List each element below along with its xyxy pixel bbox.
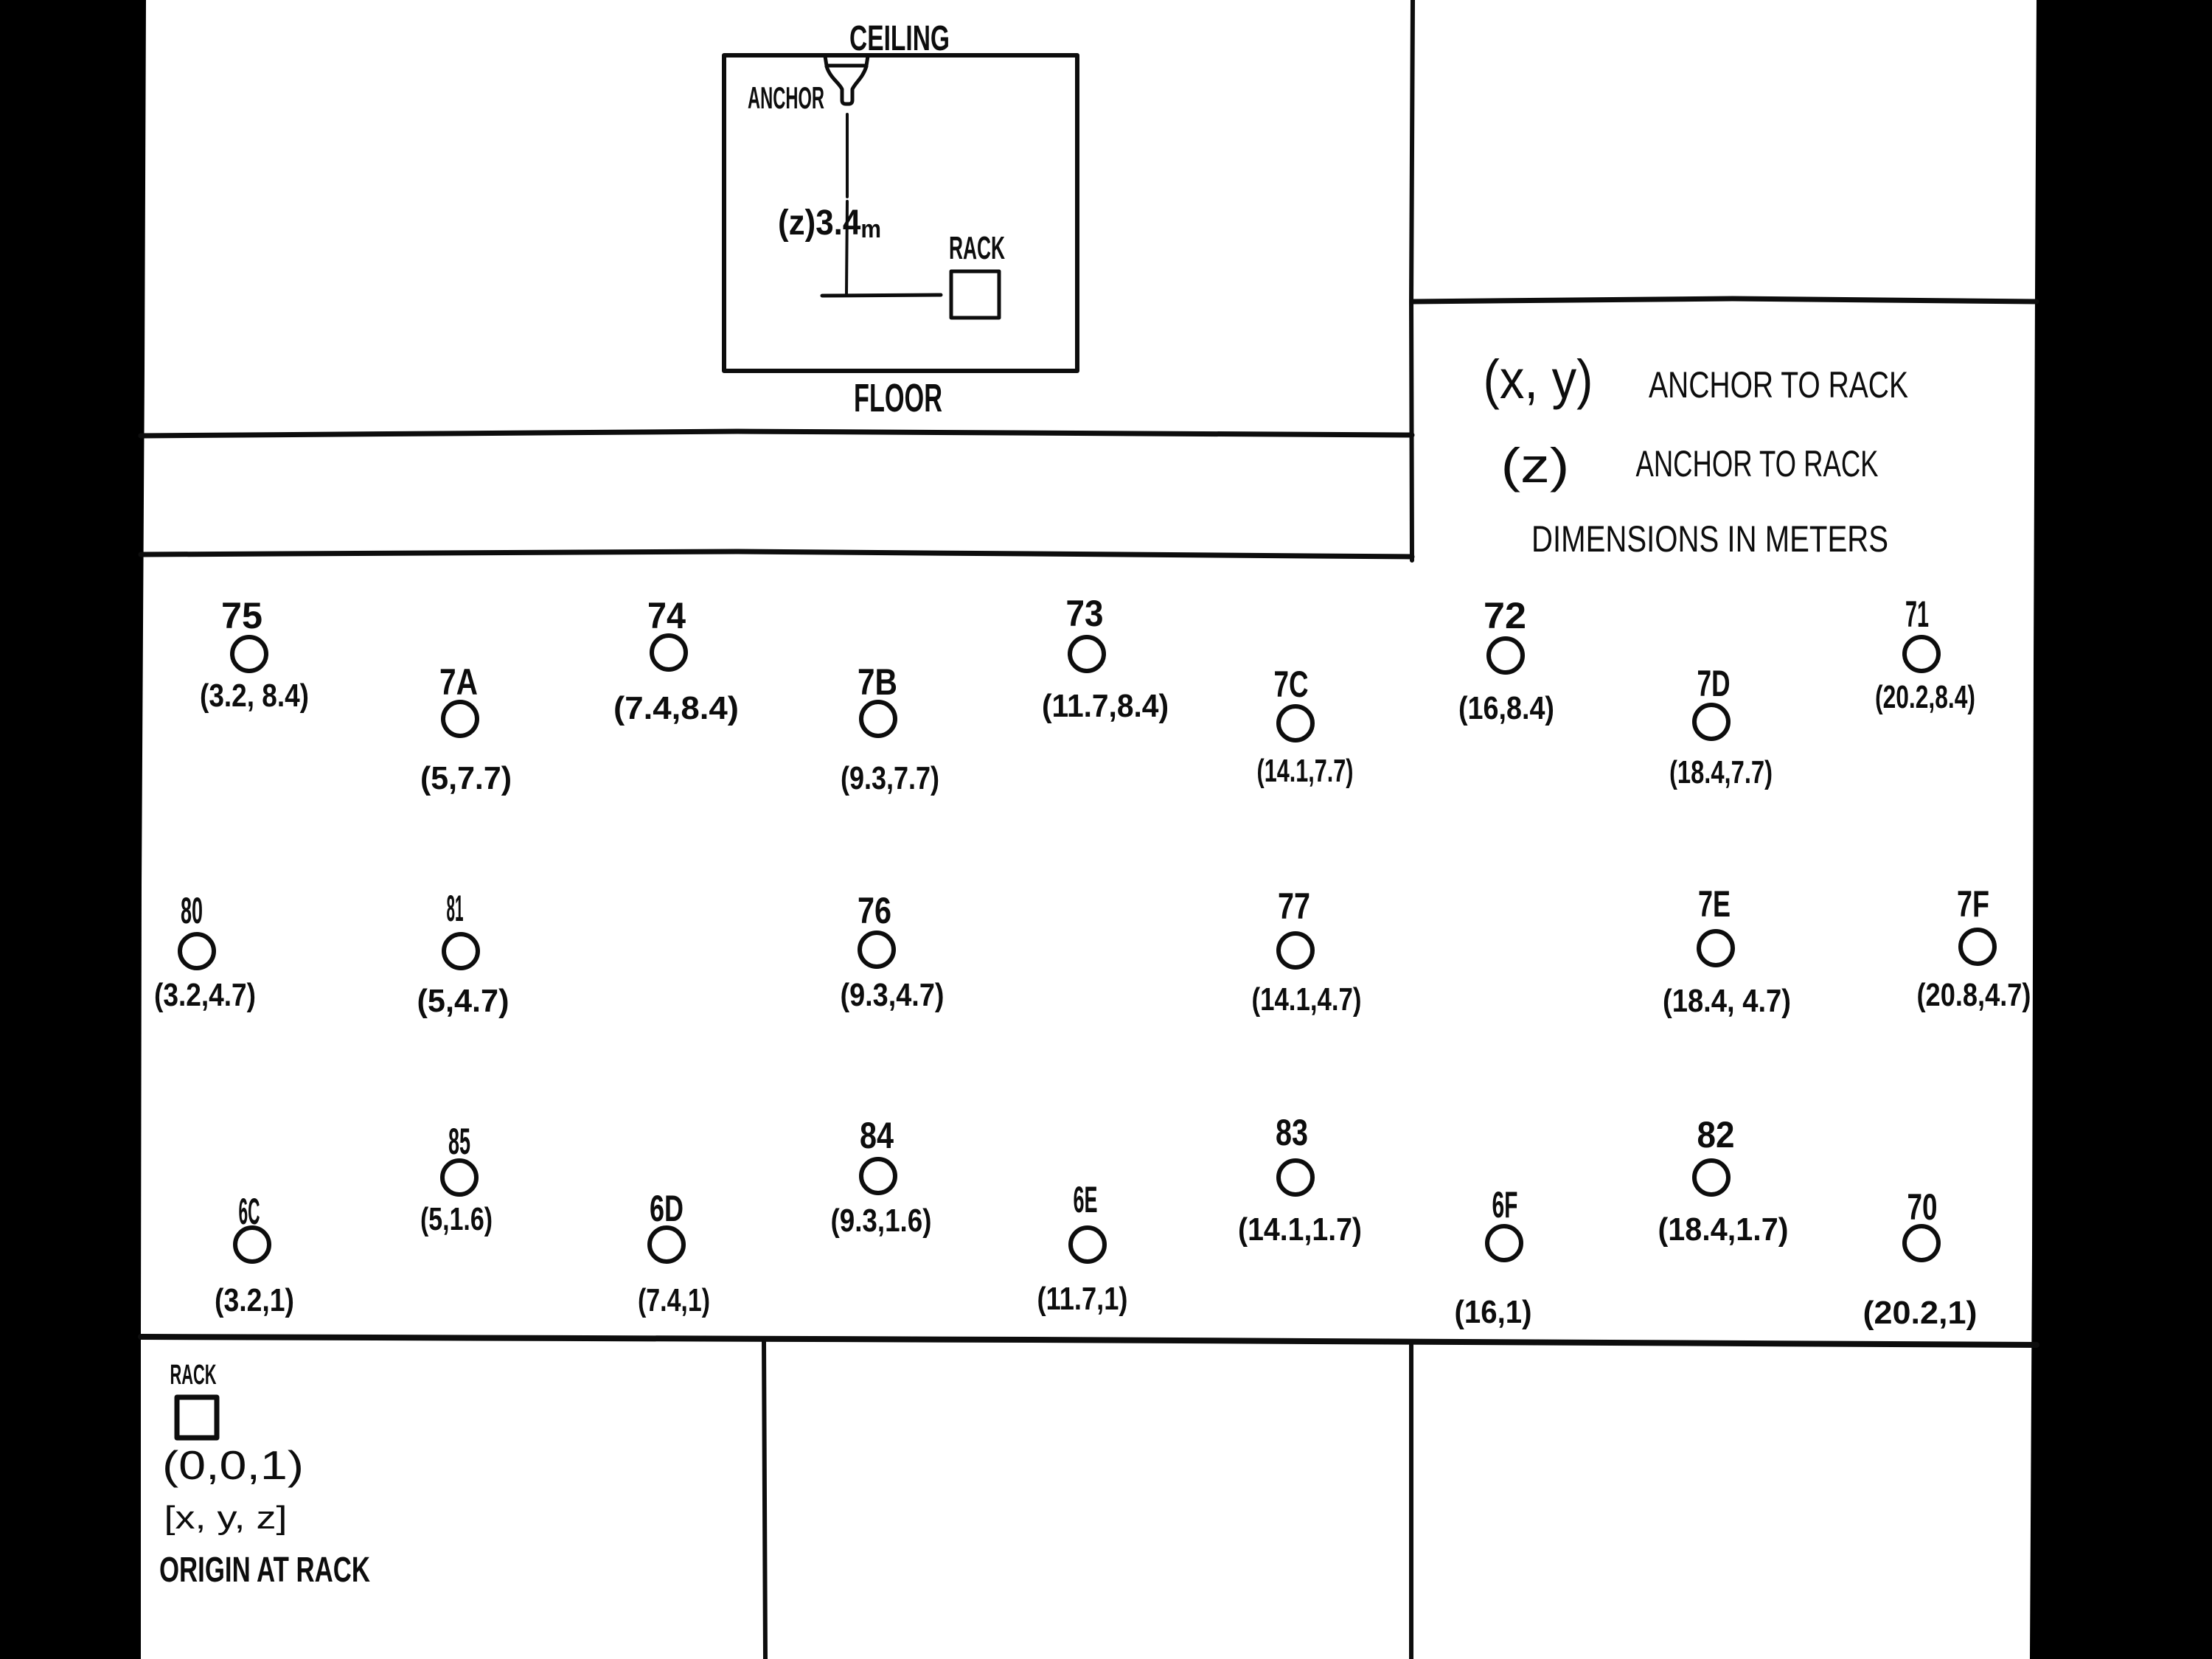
svg-text:(3.2, 8.4): (3.2, 8.4): [200, 678, 309, 714]
svg-text:7B: 7B: [858, 661, 897, 703]
svg-text:80: 80: [181, 890, 203, 931]
svg-text:FLOOR: FLOOR: [854, 376, 942, 420]
svg-text:(11.7,8.4): (11.7,8.4): [1042, 688, 1169, 724]
svg-text:82: 82: [1697, 1114, 1735, 1155]
svg-text:RACK: RACK: [949, 230, 1005, 266]
svg-text:(16,8.4): (16,8.4): [1458, 690, 1554, 726]
svg-text:(9.3,7.7): (9.3,7.7): [841, 760, 939, 796]
svg-text:RACK: RACK: [170, 1360, 217, 1391]
svg-text:7E: 7E: [1698, 883, 1731, 925]
svg-text:(11.7,1): (11.7,1): [1037, 1281, 1128, 1317]
svg-text:(5,7.7): (5,7.7): [420, 760, 512, 796]
svg-text:(7.4,8.4): (7.4,8.4): [613, 690, 739, 726]
svg-text:7F: 7F: [1957, 883, 1989, 925]
svg-text:(3.2,4.7): (3.2,4.7): [154, 977, 256, 1013]
svg-text:(7.4,1): (7.4,1): [638, 1282, 710, 1318]
svg-text:(20.2,8.4): (20.2,8.4): [1875, 679, 1975, 715]
svg-text:ANCHOR: ANCHOR: [748, 80, 824, 115]
svg-text:(14.1,4.7): (14.1,4.7): [1252, 981, 1362, 1018]
svg-text:(16,1): (16,1): [1455, 1294, 1532, 1330]
svg-text:73: 73: [1066, 593, 1104, 634]
svg-text:(5,4.7): (5,4.7): [417, 983, 509, 1019]
svg-text:81: 81: [447, 888, 464, 929]
svg-text:(14.1,1.7): (14.1,1.7): [1238, 1211, 1362, 1248]
svg-text:(14.1,7.7): (14.1,7.7): [1257, 753, 1354, 789]
svg-text:84: 84: [860, 1115, 894, 1156]
svg-text:(9.3,4.7): (9.3,4.7): [841, 977, 945, 1013]
svg-text:6E: 6E: [1074, 1179, 1098, 1220]
svg-text:72: 72: [1484, 595, 1526, 636]
svg-text:74: 74: [647, 595, 686, 636]
svg-text:DIMENSIONS IN METERS: DIMENSIONS IN METERS: [1531, 518, 1888, 560]
svg-text:77: 77: [1278, 886, 1310, 927]
svg-text:76: 76: [858, 890, 891, 931]
svg-text:(x, y): (x, y): [1484, 349, 1593, 410]
svg-text:7A: 7A: [439, 661, 478, 703]
svg-text:(3.2,1): (3.2,1): [215, 1282, 294, 1318]
svg-text:75: 75: [221, 595, 262, 636]
svg-text:(z): (z): [1501, 438, 1570, 493]
svg-text:(20.8,4.7): (20.8,4.7): [1917, 977, 2031, 1013]
svg-text:7C: 7C: [1274, 664, 1309, 705]
svg-text:(18.4, 4.7): (18.4, 4.7): [1663, 983, 1791, 1019]
svg-text:ORIGIN AT RACK: ORIGIN AT RACK: [159, 1551, 370, 1590]
svg-text:71: 71: [1905, 594, 1929, 635]
svg-text:ANCHOR TO RACK: ANCHOR TO RACK: [1636, 443, 1879, 484]
svg-text:(18.4,7.7): (18.4,7.7): [1669, 754, 1773, 790]
svg-text:ANCHOR TO RACK: ANCHOR TO RACK: [1649, 364, 1908, 406]
svg-text:83: 83: [1276, 1112, 1308, 1153]
svg-text:(9.3,1.6): (9.3,1.6): [831, 1203, 932, 1239]
svg-text:(18.4,1.7): (18.4,1.7): [1658, 1211, 1789, 1248]
svg-text:[x, y, z]: [x, y, z]: [164, 1500, 288, 1536]
svg-text:(5,1.6): (5,1.6): [420, 1201, 493, 1237]
svg-text:70: 70: [1907, 1186, 1938, 1228]
svg-text:6D: 6D: [650, 1188, 684, 1229]
svg-text:(20.2,1): (20.2,1): [1863, 1295, 1978, 1331]
svg-text:CEILING: CEILING: [849, 19, 950, 58]
svg-text:(0,0,1): (0,0,1): [162, 1442, 304, 1488]
svg-text:85: 85: [448, 1121, 470, 1162]
svg-text:6F: 6F: [1492, 1184, 1518, 1225]
svg-text:7D: 7D: [1697, 663, 1731, 704]
